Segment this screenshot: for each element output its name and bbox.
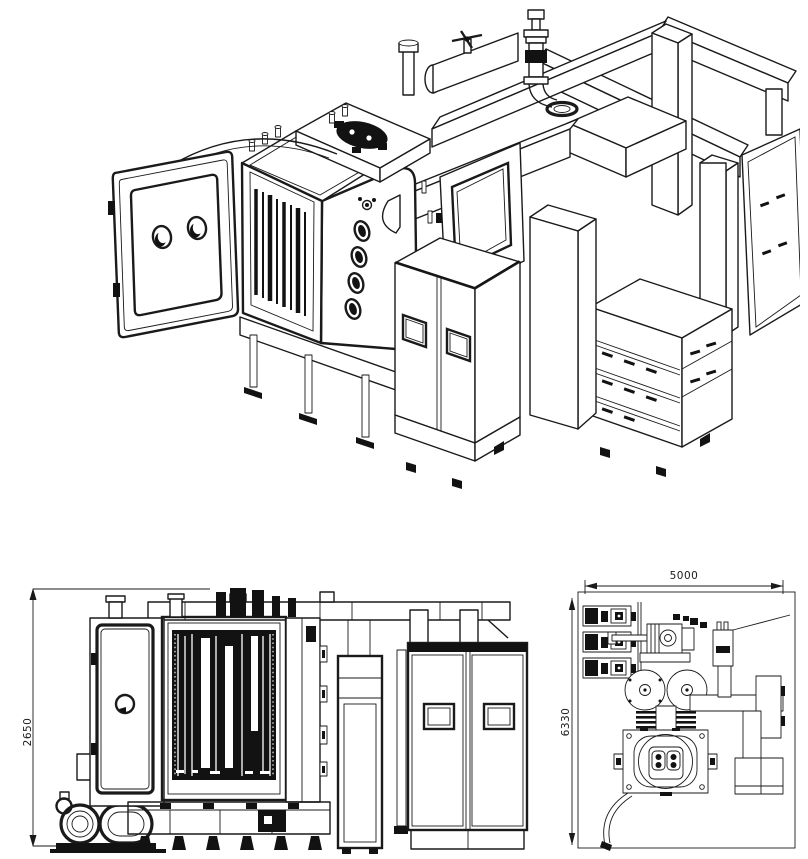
cabinet-bracket [394, 650, 408, 834]
pump-unit [583, 606, 636, 626]
open-side-panel [742, 129, 800, 335]
door-hinge [108, 201, 115, 215]
door-hinge [91, 743, 97, 755]
chamber-plan [614, 728, 717, 796]
cabinet-window-left [424, 704, 454, 729]
door-hinge [113, 283, 120, 297]
front-door [90, 596, 164, 806]
machine-feet [138, 836, 322, 850]
width-dimension: 5000 [585, 570, 783, 594]
cabinet-window-right [484, 704, 514, 729]
width-dimension-label: 5000 [670, 570, 699, 582]
shelf-rack [590, 279, 732, 477]
base-frame [128, 802, 330, 850]
isometric-view [100, 5, 800, 500]
top-plan-view: 5000 6330 [552, 558, 808, 859]
door-swing-arc [600, 793, 632, 851]
control-cabinet [395, 238, 520, 489]
electrical-cabinet [408, 643, 527, 849]
front-duct-column [530, 205, 596, 429]
pump-tower [338, 620, 382, 854]
front-elevation-view: 2650 [20, 558, 565, 859]
depth-dimension-label: 6330 [560, 708, 572, 737]
depth-dimension: 6330 [560, 598, 575, 845]
door-hinge [91, 653, 97, 665]
height-dimension-label: 2650 [22, 718, 34, 747]
technical-drawing-sheet: 2650 [0, 0, 808, 859]
chamber-side-column [286, 618, 327, 802]
pump-unit [583, 658, 636, 678]
